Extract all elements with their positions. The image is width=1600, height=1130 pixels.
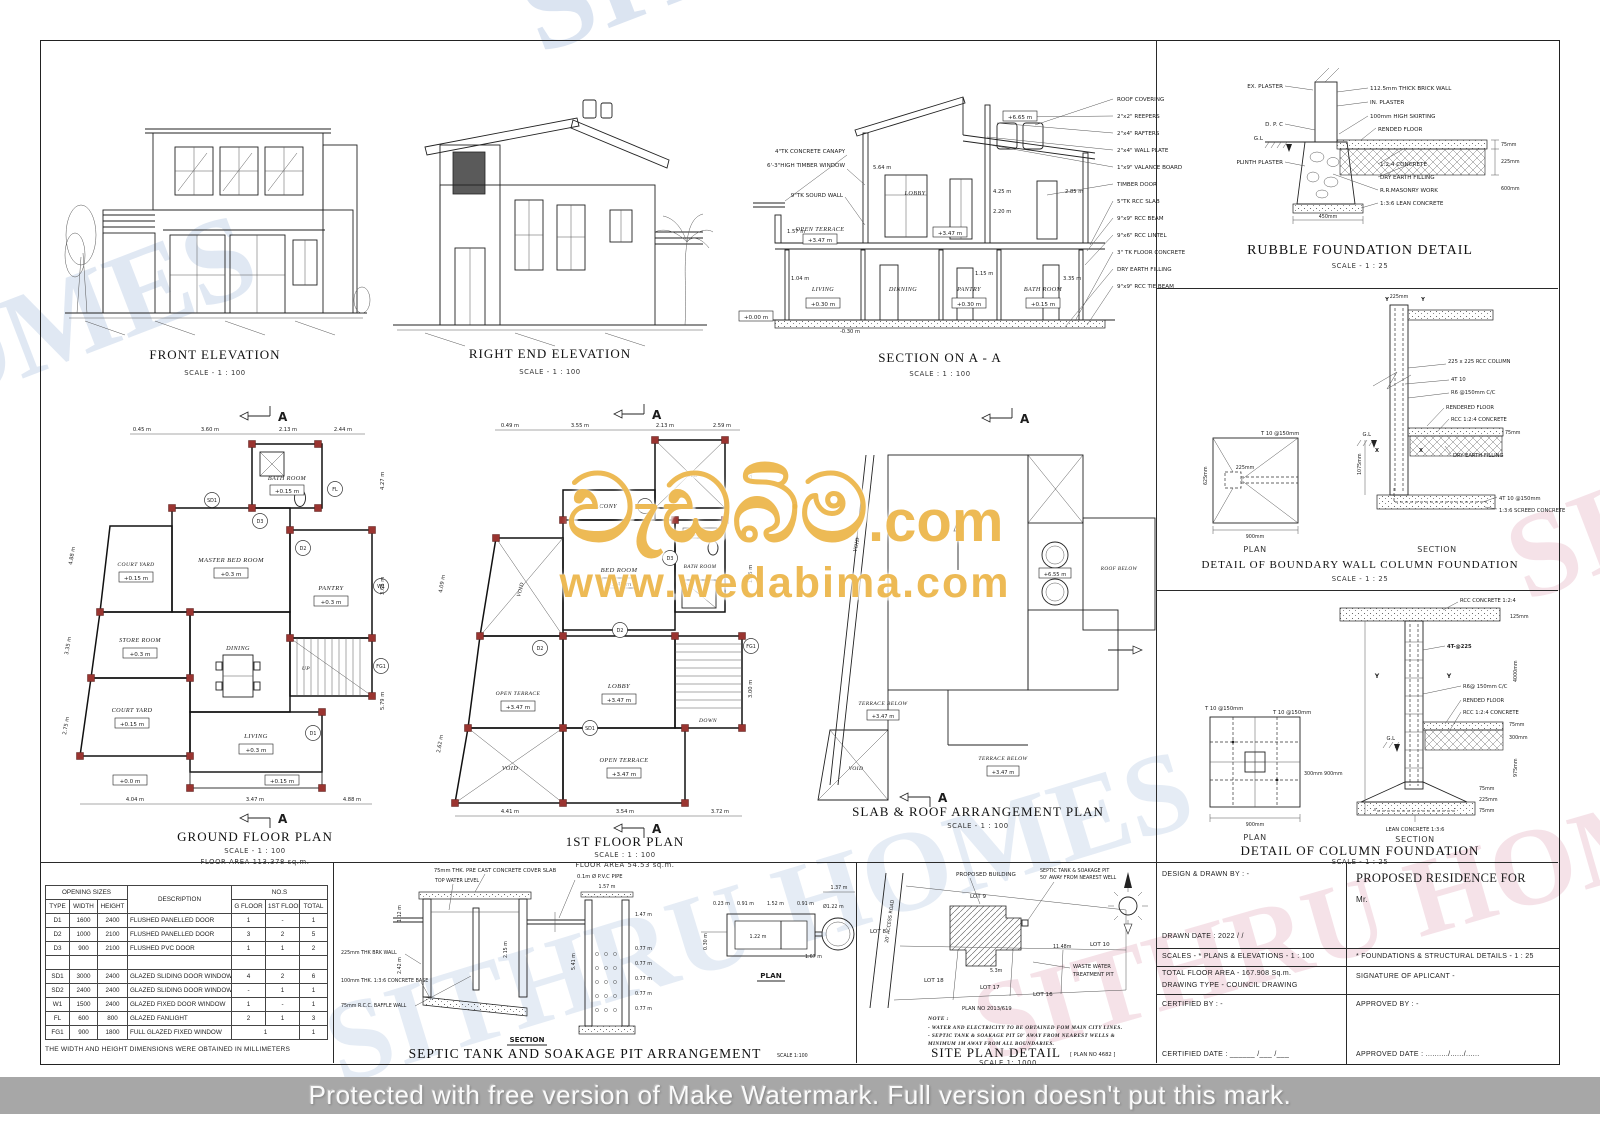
dim-label: 4.88 m: [343, 797, 361, 803]
dim-label: 1075mm: [1357, 453, 1363, 475]
dim-label: 1.35 m: [748, 565, 754, 583]
dim-label: 4.41 m: [501, 809, 519, 815]
header-cell: NO.S: [232, 886, 328, 900]
table-cell: 1500: [70, 998, 98, 1012]
table-row: SD130002400GLAZED SLIDING DOOR WINDOW426: [46, 970, 328, 984]
room-label: OPEN TERRACE: [600, 757, 649, 764]
table-cell: 1: [266, 942, 300, 956]
lot-label: LOT 10: [1090, 942, 1110, 948]
room-label: LOBBY: [607, 683, 631, 690]
opening-tag-label: D3: [667, 556, 674, 562]
section-room-labels: OPEN TERRACE +3.47 m LOBBY +3.47 m +6.65…: [739, 111, 1063, 335]
level-label: +0.30 m: [811, 302, 835, 308]
dim-label: 0.77 m: [635, 961, 652, 967]
dim-label: 0.77 m: [635, 946, 652, 952]
right-elevation-lines: [393, 100, 713, 346]
table-cell: W1: [46, 998, 70, 1012]
level-label: +3.47 m: [688, 532, 712, 538]
dim-label: 2.44 m: [334, 427, 352, 433]
table-cell: 1: [300, 984, 328, 998]
level-label: +0.15 m: [120, 722, 144, 728]
soakage-rings: [595, 952, 616, 1011]
level-label: +3.47 m: [992, 770, 1015, 776]
plan-walls: [455, 430, 742, 803]
annotation: EX. PLASTER: [1247, 84, 1283, 90]
section-axis-label: Y: [1446, 673, 1452, 680]
room-label: DINING: [225, 645, 250, 652]
table-cell: 2: [300, 942, 328, 956]
titleblock-line: [1156, 994, 1559, 995]
dim-label: 5.3m: [990, 968, 1003, 974]
schedule-table: OPENING SIZES DESCRIPTION NO.S TYPE WIDT…: [45, 885, 328, 1040]
septic-tank-drawing: 75mm THK. PRE CAST CONCRETE COVER SLAB T…: [335, 858, 857, 1065]
dim-label: 2.13 m: [279, 427, 297, 433]
level-label: +3.47 m: [808, 238, 832, 244]
certified-date-label: CERTIFIED DATE : ______ /___ /___: [1162, 1051, 1289, 1058]
annotation: 225mm THK BRK WALL: [341, 950, 397, 956]
dim-label: 1.57 m: [787, 229, 805, 235]
panel-scale: SCALE - 1 : 100: [184, 369, 245, 377]
room-label: VOID: [849, 766, 864, 772]
table-cell: 2400: [70, 984, 98, 998]
table-cell: -: [266, 914, 300, 928]
annotation: T 10 @150mm: [1272, 710, 1311, 716]
table-cell: 2: [232, 1012, 266, 1026]
dim-label: 4.25 m: [993, 189, 1011, 195]
annotation: 9"x9" RCC BEAM: [1117, 216, 1164, 222]
dim-label: 1.04 m: [791, 276, 809, 282]
dim-label: 3.35 m: [1063, 276, 1081, 282]
table-cell: 2400: [98, 914, 128, 928]
opening-tag-label: D2: [300, 546, 307, 552]
table-cell: [98, 956, 128, 970]
sub-label: PLAN: [1243, 833, 1266, 842]
table-cell: D3: [46, 942, 70, 956]
project-title: PROPOSED RESIDENCE FOR: [1356, 871, 1526, 886]
dim-label: 0.77 m: [635, 991, 652, 997]
level-label: +6.55 m: [1044, 572, 1067, 578]
table-row: D39002100FLUSHED PVC DOOR112: [46, 942, 328, 956]
dim-label: 1.57 m: [599, 884, 616, 890]
table-cell: 2400: [98, 998, 128, 1012]
annotation: RENDERED FLOOR: [1446, 405, 1494, 411]
septic-section-lines: [393, 874, 635, 1034]
sub-label: PLAN: [1243, 545, 1266, 554]
dim-label: 2.85 m: [1065, 189, 1083, 195]
column-annotations: RCC CONCRETE 1:2:4 125mm 4T-@225 Y Y R6@…: [1204, 598, 1529, 833]
room-label: PANTRY: [317, 585, 344, 592]
opening-tag-label: D3: [257, 519, 264, 525]
table-cell: 1800: [98, 1026, 128, 1040]
table-cell: [70, 956, 98, 970]
room-label: LOBBY: [904, 190, 926, 197]
annotation: 75mm R.C.C. BAFFLE WALL: [341, 1003, 407, 1009]
dim-label: 225mm: [1390, 294, 1409, 300]
table-cell: 1: [232, 914, 266, 928]
table-cell: GLAZED SLIDING DOOR WINDOW: [128, 970, 232, 984]
dim-label: 2.62 m: [436, 734, 445, 753]
lot-label: LOT 17: [980, 985, 1000, 991]
dim-label: Ø1.22 m: [823, 903, 844, 910]
room-label: OPEN TERRACE: [496, 691, 541, 697]
dim-label: 3.72 m: [711, 809, 729, 815]
sub-label: SECTION: [1417, 545, 1456, 554]
annotation: DRY EARTH FILLING: [1117, 267, 1172, 273]
dim-label: 4000mm: [1513, 660, 1519, 682]
annotation: R6@ 150mm C/C: [1463, 684, 1508, 690]
section-marker-letter: A: [652, 408, 662, 422]
annotation: 1:3:6 LEAN CONCRETE: [1380, 201, 1444, 207]
room-label: COURT YARD: [117, 562, 154, 568]
opening-tag-label: D2: [537, 646, 544, 652]
note-line: - SEPTIC TANK & SOAKAGE PIT 50' AWAY FRO…: [928, 1033, 1115, 1039]
room-label: PANTRY: [956, 286, 981, 293]
section-marker-top: A: [614, 404, 662, 422]
level-label: +0.15 m: [1031, 302, 1055, 308]
level-label: +6.65 m: [1008, 115, 1032, 121]
titleblock-line: [1156, 966, 1559, 967]
dim-label: 1.15 m: [975, 271, 993, 277]
sub-label: SECTION: [509, 1035, 544, 1044]
dim-label: 1.67 m: [805, 954, 822, 960]
table-row: D116002400FLUSHED PANELLED DOOR1-1: [46, 914, 328, 928]
level-label: +0.15 m: [124, 576, 148, 582]
table-cell: 1: [266, 984, 300, 998]
rubble-foundation-drawing: EX. PLASTER D. P. C G.L PLINTH PLASTER 1…: [1165, 62, 1555, 287]
room-label: BALCONY: [587, 503, 617, 510]
annotation: T 10 @150mm: [1204, 706, 1243, 712]
site-note: NOTE : - WATER AND ELECTRICITY TO BE OBT…: [927, 1016, 1122, 1047]
scales-label: SCALES - * PLANS & ELEVATIONS - 1 : 100: [1162, 953, 1314, 960]
table-cell: [300, 956, 328, 970]
opening-tag-label: FL: [332, 487, 338, 493]
dim-label: 2.75 m: [62, 716, 71, 735]
table-cell: 1: [300, 1026, 328, 1040]
leader-lines: [785, 99, 1113, 327]
dim-label: 2.13 m: [656, 423, 674, 429]
note-line: - WATER AND ELECTRICITY TO BE OBTAINED F…: [928, 1025, 1122, 1031]
dim-label: 75mm: [1505, 430, 1521, 436]
level-label: +0.15 m: [270, 779, 294, 785]
annotation: 112.5mm THICK BRICK WALL: [1370, 86, 1452, 92]
table-cell: 2100: [98, 928, 128, 942]
dim-label: 3.66 m: [380, 577, 386, 595]
table-cell: GLAZED SLIDING DOOR WINDOW: [128, 984, 232, 998]
table-cell: 1: [266, 1012, 300, 1026]
table-cell: 800: [98, 1012, 128, 1026]
annotation: 4"TK CONCRETE CANAPY: [775, 149, 846, 155]
section-axis-label: Y: [1384, 297, 1389, 303]
room-label: BED ROOM: [601, 567, 638, 574]
annotation: 4T 10: [1451, 377, 1466, 383]
annotation: 1:3:6 SCREED CONCRETE: [1499, 508, 1565, 514]
stair-label: UP: [302, 666, 310, 672]
panel-scale: SCALE - 1 : 100: [224, 847, 285, 855]
header-cell: HEIGHT: [98, 900, 128, 914]
dim-label: 11.48m: [1053, 944, 1072, 950]
dim-label: 0.49 m: [501, 423, 519, 429]
section-dimensions: 5.64 m 4.25 m 2.20 m 2.85 m 1.57 m 1.04 …: [787, 165, 1083, 282]
panel-title: RUBBLE FOUNDATION DETAIL: [1247, 243, 1473, 258]
table-cell: 6: [300, 970, 328, 984]
panel-title: SEPTIC TANK AND SOAKAGE PIT ARRANGEMENT: [409, 1046, 762, 1061]
opening-tag-label: D2: [617, 628, 624, 634]
room-label: BATH ROOM: [268, 475, 307, 482]
annotation: 20' ACCESS ROAD: [884, 899, 896, 943]
annotation: TREATMENT PIT: [1072, 972, 1114, 978]
dim-label: 225mm: [1501, 159, 1520, 165]
schedule-of-doors-windows: OPENING SIZES DESCRIPTION NO.S TYPE WIDT…: [45, 885, 333, 1091]
opening-tag-label: SD2: [640, 504, 650, 510]
table-cell: 600: [70, 1012, 98, 1026]
room-label: STORE ROOM: [119, 637, 161, 644]
opening-tag-label: D1: [310, 731, 317, 737]
table-cell: FL: [46, 1012, 70, 1026]
dim-label: 2.42 m: [397, 957, 403, 974]
table-cell: [46, 956, 70, 970]
dim-label: 5.64 m: [873, 165, 891, 171]
dim-label: 75mm: [1501, 142, 1517, 148]
room-label: TERRACE BELOW: [978, 756, 1028, 762]
roof-shapes: [818, 455, 1155, 800]
annotation: DRY EARTH FILLING: [1453, 453, 1504, 459]
client-name: Mr.: [1356, 895, 1368, 904]
table-cell: -: [232, 984, 266, 998]
table-cell: D1: [46, 914, 70, 928]
table-cell: 4: [232, 970, 266, 984]
dim-label: 75mm: [1479, 786, 1495, 792]
annotation: LEAN CONCRETE 1:3:6: [1386, 827, 1445, 833]
dim-label: 4.27 m: [380, 472, 386, 490]
certified-by-label: CERTIFIED BY : -: [1162, 1001, 1223, 1008]
annotation: G.L: [1386, 736, 1395, 742]
table-cell: -: [266, 998, 300, 1012]
annotation: R6 @150mm C/C: [1451, 390, 1496, 396]
section-marker-top: A: [240, 406, 288, 424]
annotation: SEPTIC TANK & SOAKAGE PIT: [1040, 868, 1109, 874]
table-cell: 900: [70, 1026, 98, 1040]
level-label: +0.30 m: [957, 302, 981, 308]
annotation: T 10 @150mm: [1260, 431, 1299, 437]
dim-label: 2.59 m: [713, 423, 731, 429]
table-cell: 2: [266, 970, 300, 984]
panel-title: SITE PLAN DETAIL: [931, 1045, 1061, 1060]
section-axis-label: Y: [1374, 673, 1380, 680]
dim-label: 1.12 m: [397, 905, 403, 922]
column-foundation-drawing: RCC CONCRETE 1:2:4 125mm 4T-@225 Y Y R6@…: [1165, 592, 1555, 864]
opening-tag-label: FG1: [376, 664, 386, 670]
annotation: 0.1m Ø P.V.C PIPE: [577, 873, 623, 880]
panel-title: RIGHT END ELEVATION: [469, 346, 631, 361]
panel-title: GROUND FLOOR PLAN: [177, 829, 333, 844]
table-cell: SD1: [46, 970, 70, 984]
table-cell: 1: [300, 914, 328, 928]
level-label: +0.00 m: [744, 315, 768, 321]
annotation: TOP WATER LEVEL: [434, 878, 479, 884]
annotation: PROPOSED BUILDING: [956, 872, 1016, 878]
make-watermark-text: Protected with free version of Make Wate…: [309, 1080, 1292, 1110]
level-label: -0.30 m: [840, 329, 860, 335]
opening-tag-label: SD1: [207, 498, 217, 504]
header-cell: DESCRIPTION: [128, 886, 232, 914]
panel-scale: SCALE - 1 : 100: [519, 368, 580, 376]
table-cell: D2: [46, 928, 70, 942]
approved-date-label: APPROVED DATE : ........../....../......: [1356, 1051, 1480, 1058]
dim-label: 5.79 m: [380, 692, 386, 710]
table-cell: SD2: [46, 984, 70, 998]
compass-rose: [1108, 872, 1148, 934]
room-label: DINNING: [888, 286, 917, 293]
site-plan-drawing: PROPOSED BUILDING SEPTIC TANK & SOAKAGE …: [858, 858, 1158, 1065]
table-cell: 1: [232, 1026, 300, 1040]
annotation: ROOF COVERING: [1117, 97, 1164, 103]
drawing-type-label: DRAWING TYPE - COUNCIL DRAWING: [1162, 982, 1298, 989]
dim-label: 0.91 m: [737, 901, 754, 907]
room-label: COURT YARD: [112, 707, 153, 714]
table-cell: GLAZED FANLIGHT: [128, 1012, 232, 1026]
dim-label: 1.22 m: [750, 934, 767, 940]
room-label: VOID: [502, 765, 518, 772]
table-row: FL600800GLAZED FANLIGHT213: [46, 1012, 328, 1026]
level-label: +0.3 m: [221, 572, 242, 578]
slab-labels: VOID +6.55 m ROOF BELOW TERRACE BELOW +3…: [849, 537, 1138, 776]
dim-label: 1.47 m: [635, 912, 652, 918]
dim-label: 900mm: [1246, 534, 1265, 540]
annotation: PLINTH PLASTER: [1236, 160, 1283, 166]
level-label: +0.15 m: [275, 489, 299, 495]
plan-dimensions: 0.49 m 3.55 m 2.13 m 2.59 m 4.41 m 3.54 …: [436, 423, 754, 816]
section-axis-label: Y: [1420, 297, 1425, 303]
dim-label: 3.60 m: [201, 427, 219, 433]
level-label: +3.47 m: [607, 698, 631, 704]
title-block: DESIGN & DRAWN BY : - DRAWN DATE : 2022 …: [1156, 863, 1559, 1065]
annotation: 2"x2" REEPERS: [1117, 114, 1160, 120]
level-label: +0.3 m: [130, 652, 151, 658]
dim-label: 600mm: [1501, 186, 1520, 192]
dim-label: 300mm: [1509, 735, 1528, 741]
annotation: 100mm HIGH SKIRTING: [1370, 114, 1435, 120]
frame-divider: [333, 862, 334, 1063]
header-cell: G FLOOR: [232, 900, 266, 914]
lot-label: LOT 8: [870, 929, 887, 935]
table-cell: 900: [70, 942, 98, 956]
schedule-note: THE WIDTH AND HEIGHT DIMENSIONS WERE OBT…: [45, 1046, 333, 1053]
drawn-date-label: DRAWN DATE : 2022 / /: [1162, 933, 1244, 940]
room-label: LIVING: [243, 733, 268, 740]
dim-label: 225mm: [1236, 465, 1255, 471]
table-row: W115002400GLAZED FIXED DOOR WINDOW1-1: [46, 998, 328, 1012]
table-cell: FLUSHED PVC DOOR: [128, 942, 232, 956]
table-row: FG19001800FULL GLAZED FIXED WINDOW11: [46, 1026, 328, 1040]
front-elevation-lines: [65, 129, 370, 335]
dim-label: 0.91 m: [797, 901, 814, 907]
section-axis-label: X: [1419, 448, 1423, 454]
schedule-header: OPENING SIZES DESCRIPTION NO.S TYPE WIDT…: [46, 886, 328, 914]
section-marker-letter: A: [1020, 412, 1030, 426]
header-cell: 1ST FLOOR: [266, 900, 300, 914]
dim-label: 0.77 m: [635, 1006, 652, 1012]
section-marker-letter: A: [938, 791, 948, 805]
design-by-label: DESIGN & DRAWN BY : -: [1162, 871, 1249, 878]
table-cell: [266, 956, 300, 970]
annotation: 2"x4" RAFTERS: [1117, 131, 1160, 137]
annotation: DRY EARTH FILLING: [1380, 175, 1435, 181]
dim-label: 225mm: [1479, 797, 1498, 803]
panel-title: DETAIL OF COLUMN FOUNDATION: [1241, 843, 1480, 858]
opening-tag-label: FG1: [746, 644, 756, 650]
annotation: RCC 1:2:4 CONCRETE: [1463, 710, 1519, 716]
table-cell: 3: [232, 928, 266, 942]
room-label: MASTER BED ROOM: [197, 557, 264, 564]
dim-label: 75mm: [1509, 722, 1525, 728]
room-label: TERRACE BELOW: [858, 701, 908, 707]
section-aa-drawing: ROOF COVERING 2"x2" REEPERS 2"x4" RAFTER…: [735, 75, 1160, 390]
header-cell: OPENING SIZES: [46, 886, 128, 900]
plan-columns: [452, 437, 746, 807]
table-cell: 1600: [70, 914, 98, 928]
table-cell: 1: [232, 998, 266, 1012]
table-cell: FULL GLAZED FIXED WINDOW: [128, 1026, 232, 1040]
table-cell: 1: [300, 998, 328, 1012]
floor-area-label: TOTAL FLOOR AREA - 167.908 Sq.m.: [1162, 970, 1291, 977]
dim-label: 125mm: [1510, 614, 1529, 620]
room-label: ROOF BELOW: [1100, 566, 1138, 572]
table-cell: 1: [232, 942, 266, 956]
approved-by-label: APPROVED BY : -: [1356, 1001, 1419, 1008]
site-lines: [870, 872, 1148, 1008]
header-cell: TOTAL: [300, 900, 328, 914]
opening-tag-label: SD1: [585, 726, 595, 732]
panel-scale: SCALE - 1 : 25: [1332, 262, 1389, 270]
room-label: BATH ROOM: [684, 564, 717, 570]
dim-label: 3.00 m: [748, 680, 754, 698]
level-label: +3.47 m: [607, 582, 631, 588]
table-row: D210002100FLUSHED PANELLED DOOR325: [46, 928, 328, 942]
annotation: 100mm THK. 1:3:6 CONCRETE BASE: [341, 978, 428, 984]
column-plan-lines: [1210, 717, 1300, 822]
dim-label: 3.55 m: [571, 423, 589, 429]
annotation: R.R.MASONRY WORK: [1380, 188, 1438, 194]
ground-floor-plan-drawing: A BATH ROOM +0.15 m MASTER BED ROOM +0.3…: [60, 400, 390, 865]
note-title: NOTE :: [927, 1016, 949, 1022]
dim-label: 4.04 m: [126, 797, 144, 803]
header-cell: TYPE: [46, 900, 70, 914]
table-cell: FLUSHED PANELLED DOOR: [128, 914, 232, 928]
dim-label: 5.41 m: [571, 953, 577, 970]
header-cell: WIDTH: [70, 900, 98, 914]
panel-title: FRONT ELEVATION: [149, 347, 280, 362]
section-left-annotations: 4"TK CONCRETE CANAPY 6'-3"HIGH TIMBER WI…: [767, 149, 846, 199]
dim-label: 0.30 m: [703, 933, 709, 950]
annotation: RENDED FLOOR: [1378, 127, 1422, 133]
dim-label: 1.37 m: [831, 885, 848, 891]
boundary-foundation-drawing: Y Y X X 225 x 225 RCC COLUMN 4T 10 R6 @1…: [1165, 290, 1555, 590]
annotation: RCC CONCRETE 1:2:4: [1460, 598, 1517, 604]
dim-label: 0.23 m: [713, 901, 730, 907]
drawing-sheet-page: SITHRU HOMES SITHRU HOMES SITHRU HOMES S…: [0, 0, 1600, 1130]
table-row: [46, 956, 328, 970]
make-watermark-bar: Protected with free version of Make Wate…: [0, 1077, 1600, 1114]
lot-label: LOT 16: [1033, 992, 1053, 998]
panel-scale: SCALE - 1 : 100: [947, 822, 1008, 830]
table-cell: [232, 956, 266, 970]
annotation: 5"TK RCC SLAB: [1117, 199, 1160, 205]
annotation: TIMBER DOOR: [1116, 182, 1157, 188]
panel-scale: SCALE 1: 1000: [979, 1059, 1037, 1067]
plan-room-labels: VOID BALCONY BED ROOM +3.47 m +3.47 m BA…: [496, 472, 717, 778]
boundary-plan-lines: [1213, 438, 1298, 534]
annotation: 50' AWAY FROM NEAREST WELL: [1040, 875, 1117, 881]
